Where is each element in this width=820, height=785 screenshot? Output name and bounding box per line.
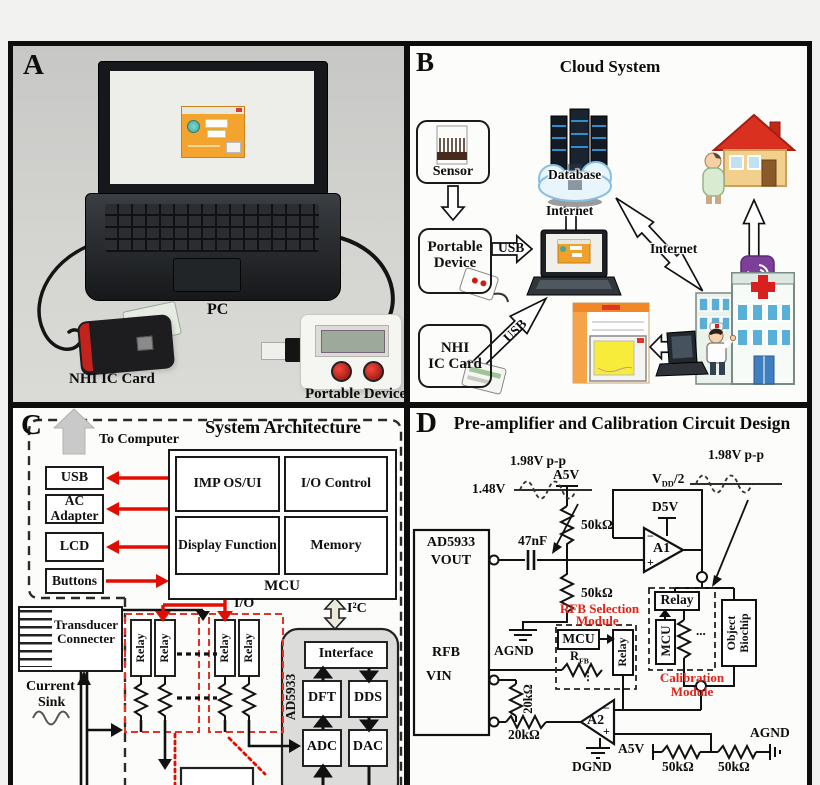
internet-diagonal-label: Internet bbox=[650, 242, 697, 256]
panel-c-letter: C bbox=[21, 410, 42, 440]
red-button bbox=[331, 361, 352, 382]
sensor-box: Sensor bbox=[416, 120, 490, 184]
r50k-label-1: 50kΩ bbox=[581, 518, 613, 532]
connector-hatch bbox=[20, 610, 52, 667]
c47nf-label: 47nF bbox=[518, 534, 547, 548]
figure-frame: A PC NHI IC Card Portable Device bbox=[8, 41, 812, 785]
display-function-box: Display Function bbox=[175, 516, 280, 575]
vpp-label-left: 1.98V p-p bbox=[510, 454, 566, 468]
app-window bbox=[181, 106, 245, 158]
usb-box: USB bbox=[45, 466, 104, 490]
arrow-sensor-to-portable bbox=[442, 186, 464, 220]
sensor-label: Sensor bbox=[433, 164, 473, 179]
buttons-label: Buttons bbox=[52, 574, 97, 589]
rfb-module-label-line2: Module bbox=[576, 614, 619, 628]
calib-hdots: ... bbox=[696, 624, 706, 638]
portable-device-line1: Portable bbox=[428, 239, 483, 255]
vpp-label-right: 1.98V p-p bbox=[708, 448, 764, 462]
usb-arrow-label: USB bbox=[498, 241, 524, 255]
rfb-resistor-label: RFB bbox=[570, 650, 589, 666]
arrow-hospital-to-home bbox=[744, 200, 765, 262]
ac-adapter-label: AC Adapter bbox=[49, 494, 101, 523]
nhi-line2: IC Card bbox=[428, 356, 482, 372]
card-reader-contact bbox=[136, 336, 153, 351]
rfb-pin-label: RFB bbox=[432, 646, 460, 661]
calib-mcu-label: MCU bbox=[659, 621, 672, 661]
agnd-label-2: AGND bbox=[750, 726, 790, 740]
panel-b-cloud-system: Sensor Portable Device NHI IC Card B Clo… bbox=[410, 46, 807, 402]
relay-boxes bbox=[131, 620, 259, 676]
ac-adapter-box: AC Adapter bbox=[45, 494, 104, 524]
a2-plus: + bbox=[603, 725, 610, 737]
memory-box: Memory bbox=[284, 516, 388, 575]
lcd-box: LCD bbox=[45, 532, 104, 562]
imp-os-ui-box: IMP OS/UI bbox=[175, 456, 280, 512]
i2c-label: I²C bbox=[347, 602, 367, 617]
a2-minus: − bbox=[603, 702, 610, 714]
panel-d-letter: D bbox=[416, 408, 437, 438]
chip-name-label: AD5933 bbox=[416, 536, 486, 551]
portable-device-box: Portable Device bbox=[418, 228, 492, 294]
r50k-label-3: 50kΩ bbox=[662, 760, 694, 774]
pc-label: PC bbox=[207, 302, 228, 319]
a1-plus: + bbox=[647, 556, 654, 568]
figure-page: { "panel_a": { "letter": "A", "pc_label"… bbox=[0, 0, 820, 785]
r20k-vertical-label: 20kΩ bbox=[522, 682, 535, 716]
i2c-arrow bbox=[325, 598, 345, 629]
relay-label: Relay bbox=[158, 622, 170, 674]
portable-device-photo bbox=[300, 314, 402, 390]
app-text-line bbox=[188, 145, 220, 147]
v148-label: 1.48V bbox=[472, 482, 505, 496]
vdd-label: VDD/2 bbox=[652, 472, 684, 489]
memory-label: Memory bbox=[310, 538, 361, 553]
app-field bbox=[205, 119, 228, 128]
a1-label: A1 bbox=[653, 542, 670, 557]
panel-c-system-architecture: USB AC Adapter LCD Buttons IMP OS/UI I/O… bbox=[13, 408, 404, 785]
dgnd-label: DGND bbox=[572, 760, 612, 774]
lcd-label: LCD bbox=[60, 539, 90, 554]
laptop-keyboard bbox=[105, 204, 319, 252]
dds-label: DDS bbox=[349, 691, 387, 706]
transducer-connecter-box: Transducer Connecter bbox=[18, 606, 123, 672]
buttons-box: Buttons bbox=[45, 568, 104, 594]
to-computer-arrow bbox=[54, 409, 94, 454]
r50k-label-4: 50kΩ bbox=[718, 760, 750, 774]
object-biochip-label: Object Biochip bbox=[725, 603, 751, 663]
continuation-dashes bbox=[177, 654, 217, 698]
panel-c-title: System Architecture bbox=[173, 418, 393, 437]
a1-minus: − bbox=[647, 530, 654, 542]
io-label: I/O bbox=[234, 597, 254, 612]
vout-pin-label: VOUT bbox=[416, 554, 486, 569]
laptop-touchpad bbox=[173, 258, 241, 292]
app-titlebar bbox=[182, 107, 244, 114]
relay-label: Relay bbox=[242, 622, 254, 674]
mcu-label: MCU bbox=[170, 579, 394, 595]
portable-device-label: Portable Device bbox=[305, 387, 404, 402]
current-sink-wave bbox=[33, 712, 69, 725]
pc-laptop-icon bbox=[527, 230, 621, 295]
vin-pin-label: VIN bbox=[426, 670, 452, 685]
partial-box bbox=[181, 768, 253, 785]
usb-label: USB bbox=[61, 470, 88, 485]
lcd-bezel bbox=[315, 325, 389, 357]
nhi-card-label: NHI IC Card bbox=[69, 372, 155, 388]
io-control-box: I/O Control bbox=[284, 456, 388, 512]
app-field bbox=[207, 130, 226, 138]
home-icon bbox=[714, 115, 794, 186]
nhi-line1: NHI bbox=[441, 340, 469, 356]
internet-vertical-label: Internet bbox=[546, 204, 593, 218]
nhi-ic-card-box: NHI IC Card bbox=[418, 324, 492, 388]
rfb-mcu-label: MCU bbox=[558, 632, 599, 646]
adc-label: ADC bbox=[303, 740, 341, 755]
transducer-label: Transducer Connecter bbox=[50, 618, 122, 646]
agnd-label-1: AGND bbox=[494, 644, 534, 658]
d5v-label: D5V bbox=[652, 500, 678, 514]
current-sink-line2: Sink bbox=[38, 696, 65, 711]
interface-label: Interface bbox=[305, 647, 387, 662]
dac-label: DAC bbox=[349, 740, 387, 755]
rfb-vdots: ⋮ bbox=[582, 670, 594, 682]
io-control-label: I/O Control bbox=[301, 476, 371, 491]
patient-icon bbox=[703, 153, 724, 204]
panel-a-letter: A bbox=[23, 50, 44, 80]
to-computer-label: To Computer bbox=[99, 433, 179, 448]
card-reader-stripe bbox=[79, 323, 93, 372]
relay-label: Relay bbox=[134, 622, 146, 674]
panel-d-title: Pre-amplifier and Calibration Circuit De… bbox=[442, 414, 802, 432]
mcu-box: IMP OS/UI I/O Control Display Function M… bbox=[168, 449, 397, 600]
red-button bbox=[363, 361, 384, 382]
database-icon bbox=[539, 109, 611, 207]
a2-label: A2 bbox=[587, 714, 604, 729]
panel-b-title: Cloud System bbox=[530, 58, 690, 76]
database-label: Database bbox=[548, 168, 601, 182]
app-close-icon bbox=[236, 108, 242, 112]
app-logo-icon bbox=[187, 120, 200, 133]
panel-a-photo: A PC NHI IC Card Portable Device bbox=[13, 46, 404, 402]
calibration-module-label: Calibration Module bbox=[638, 671, 746, 698]
r50k-label-2: 50kΩ bbox=[581, 586, 613, 600]
panel-b-letter: B bbox=[416, 48, 434, 76]
a5v-label-top: A5V bbox=[553, 468, 579, 482]
lcd-screen bbox=[321, 330, 385, 353]
calib-relay-label: Relay bbox=[655, 593, 699, 607]
mcu-red-arrows bbox=[106, 478, 168, 581]
portable-device-line2: Device bbox=[434, 255, 476, 271]
ad5933-rotated-label: AD5933 bbox=[284, 666, 298, 728]
mcu-red-arrowheads bbox=[106, 471, 169, 588]
dft-label: DFT bbox=[303, 691, 341, 706]
imp-os-ui-label: IMP OS/UI bbox=[193, 476, 261, 491]
app-button bbox=[226, 142, 241, 153]
display-function-label: Display Function bbox=[178, 538, 277, 553]
relay-label: Relay bbox=[218, 622, 230, 674]
current-sink-line1: Current bbox=[26, 680, 75, 695]
panel-d-circuit: D Pre-amplifier and Calibration Circuit … bbox=[410, 408, 807, 785]
r20k-horizontal-label: 20kΩ bbox=[508, 728, 540, 742]
webpage-icon bbox=[573, 303, 649, 383]
card-reader bbox=[77, 314, 175, 376]
a5v-label-bottom: A5V bbox=[618, 742, 644, 756]
rfb-relay-label: Relay bbox=[616, 632, 628, 672]
